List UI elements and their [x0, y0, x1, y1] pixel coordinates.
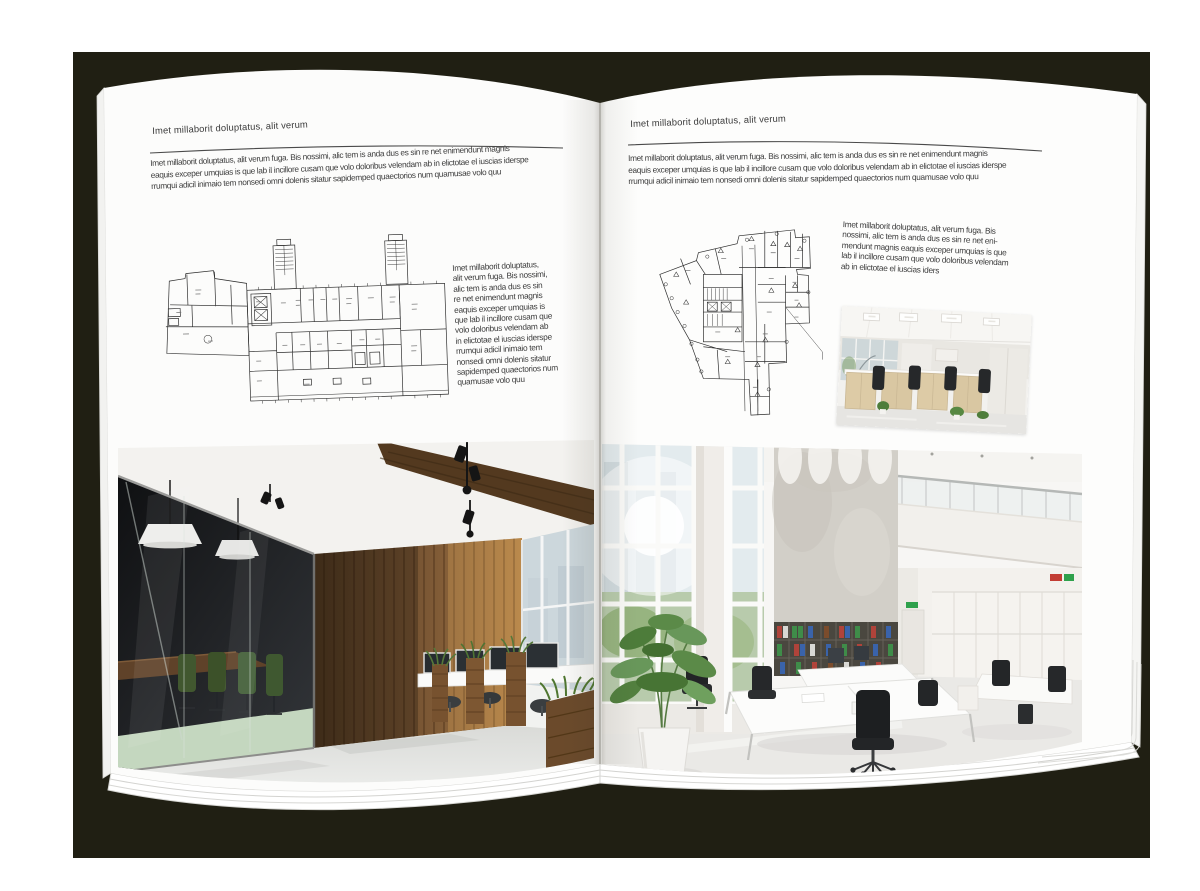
exit-sign	[1064, 574, 1074, 581]
office-workstations-illustration	[836, 306, 1032, 434]
right-page-paragraph: Imet millaborit doluptatus, alit verum f…	[628, 148, 1007, 188]
floor-plan-room-labels	[176, 282, 421, 388]
right-page-photo	[602, 442, 1082, 786]
first-aid-sign	[1050, 574, 1062, 581]
right-floor-plan	[645, 213, 841, 427]
right-page-small-photo	[836, 306, 1032, 434]
loft-office-illustration	[118, 440, 594, 792]
floor-plan-walls	[163, 233, 449, 407]
column-markers	[664, 232, 810, 391]
left-page-photo	[118, 440, 594, 792]
magazine-spread-mockup: Imet millaborit doluptatus, alit verum I…	[0, 0, 1200, 891]
floor-plan-walls	[660, 230, 822, 415]
bright-office-illustration	[602, 442, 1082, 786]
left-floor-plan	[150, 226, 453, 424]
left-side-text: Imet millaborit doluptatus, alit verum f…	[452, 258, 576, 388]
right-side-text: Imet millaborit doluptatus, alit verum f…	[841, 219, 1045, 280]
triangle-markers	[674, 236, 803, 396]
